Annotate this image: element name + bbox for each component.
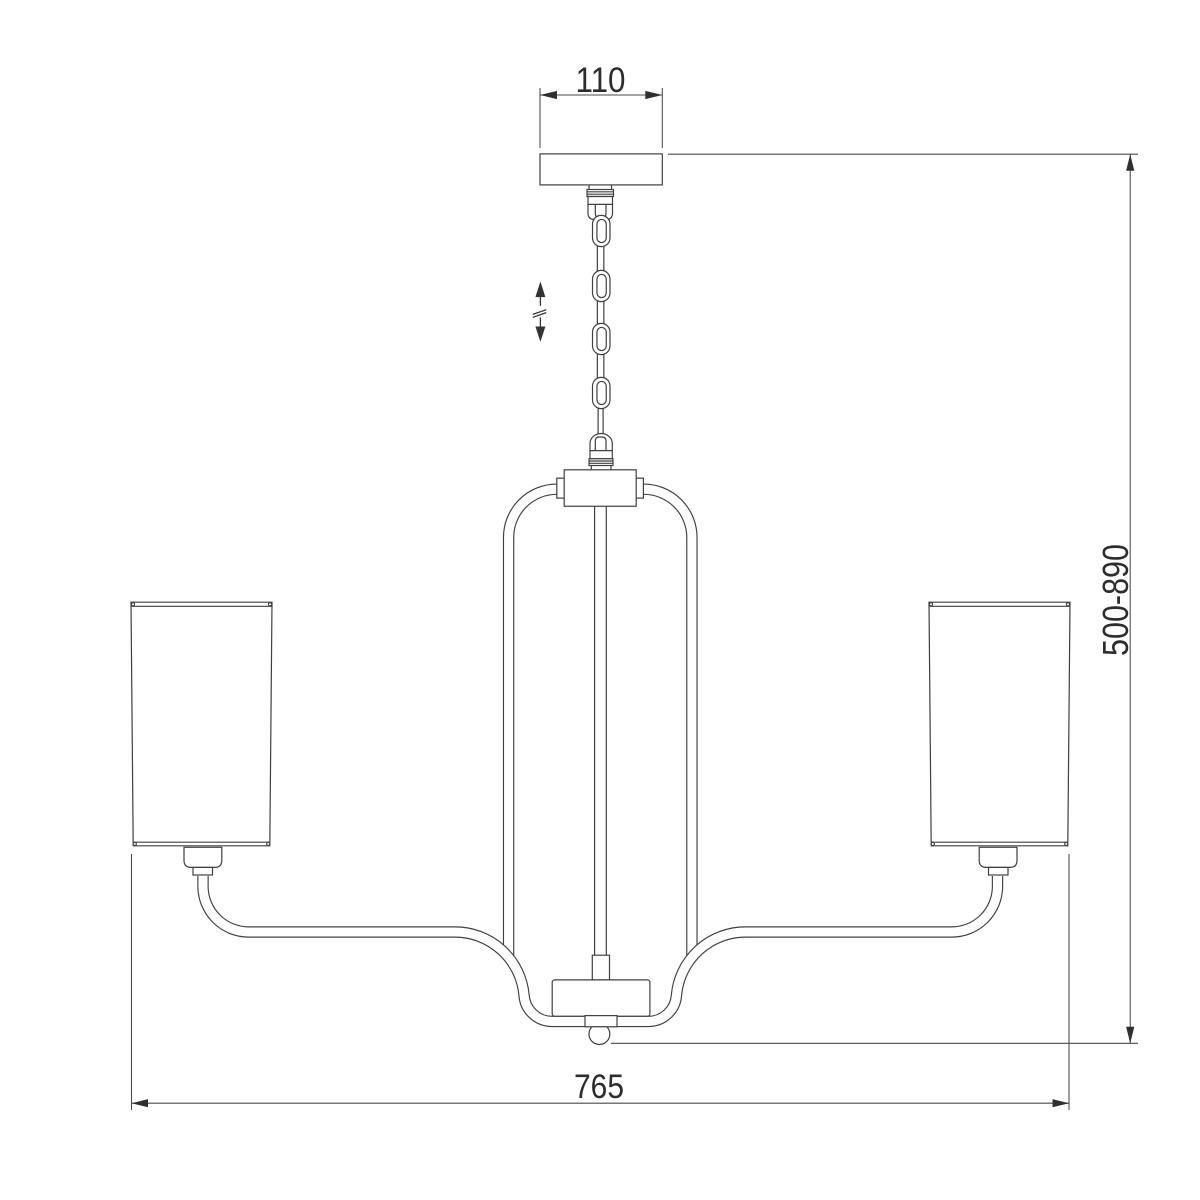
svg-text:765: 765 xyxy=(574,1068,624,1106)
svg-text:500-890: 500-890 xyxy=(1095,544,1136,656)
svg-text:110: 110 xyxy=(576,61,626,100)
